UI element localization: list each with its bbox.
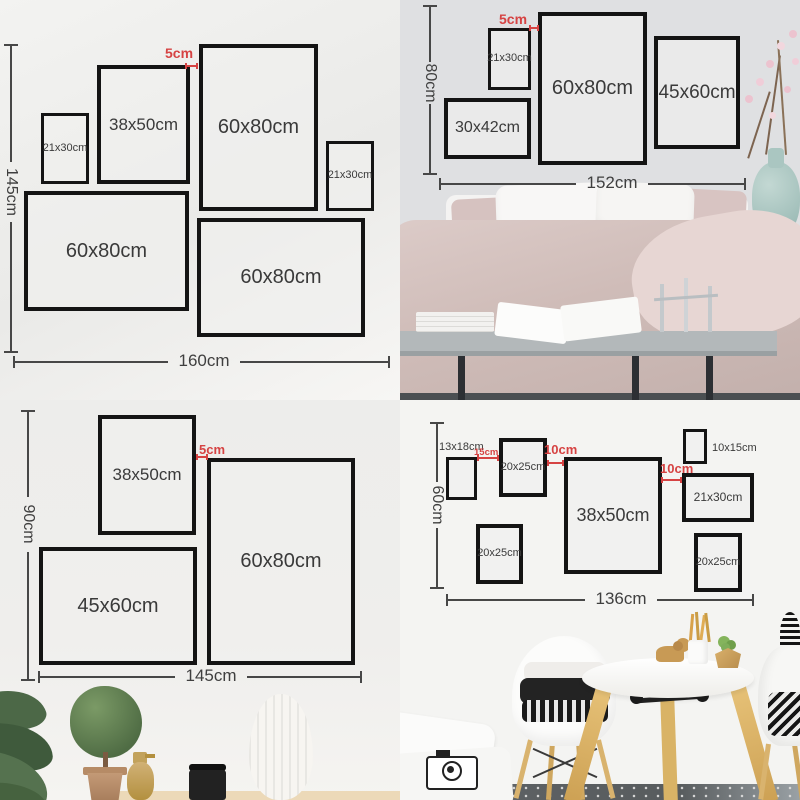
dimension-line-vertical — [436, 423, 438, 482]
dimension-tick — [423, 173, 437, 175]
branch-stem — [777, 40, 787, 155]
panel-top-left: 145cm 160cm 21x30cm 38x50cm 60x80cm 21x3… — [0, 0, 400, 400]
dimension-line-vertical — [429, 104, 431, 174]
gap-arrow — [529, 27, 539, 29]
height-dimension-label: 80cm — [421, 55, 439, 111]
blossom — [792, 58, 799, 65]
frame-45x60: 45x60cm — [654, 36, 740, 149]
dimension-line-vertical — [10, 45, 12, 162]
blossom — [777, 42, 785, 50]
frame-21x30-left: 21x30cm — [41, 113, 89, 184]
dimension-line-horizontal — [440, 183, 576, 185]
dimension-tick — [4, 44, 18, 46]
dimension-tick — [744, 178, 746, 190]
width-dimension-label: 152cm — [576, 173, 648, 193]
blossom — [756, 78, 764, 86]
dimension-line-horizontal — [657, 599, 753, 601]
gap-label-10cm-left: 10cm — [544, 442, 577, 457]
candlestick — [708, 286, 712, 332]
frame-21x30: 21x30cm — [488, 28, 531, 90]
dimension-tick — [446, 594, 448, 606]
frame-13x18 — [446, 457, 477, 500]
candlestick — [684, 278, 688, 332]
pleated-lamp — [249, 694, 313, 800]
bench-leg — [458, 350, 465, 400]
dimension-tick — [38, 671, 40, 683]
frame-38x50: 38x50cm — [564, 457, 662, 574]
frame-45x60: 45x60cm — [39, 547, 197, 665]
frame-20x25-bottom-right: 20x25cm — [694, 533, 742, 592]
height-dimension-label: 60cm — [428, 477, 446, 533]
magazine-stack — [416, 312, 494, 332]
frame-38x50: 38x50cm — [98, 415, 196, 535]
table-leg — [660, 692, 678, 800]
dimension-line-vertical — [10, 222, 12, 352]
pencil-cup — [688, 640, 708, 664]
frame-60x80: 60x80cm — [538, 12, 647, 165]
panel-bottom-left: 90cm 145cm 38x50cm 60x80cm 45x60cm 5cm — [0, 400, 400, 800]
dimension-line-horizontal — [247, 676, 361, 678]
panel-top-right: 80cm 152cm 21x30cm 60x80cm 45x60cm 30x42… — [400, 0, 800, 400]
geometric-planter — [715, 648, 741, 668]
brass-sprayer-body — [127, 762, 154, 800]
dimension-line-vertical — [27, 552, 29, 680]
bench-leg — [706, 350, 713, 400]
gap-arrow — [196, 456, 208, 458]
brass-sprayer-nozzle — [145, 754, 155, 758]
dimension-line-vertical — [27, 411, 29, 497]
gap-arrow — [477, 457, 499, 459]
wooden-elephant-ear — [673, 641, 683, 651]
blossom — [766, 60, 774, 68]
dimension-tick — [423, 5, 437, 7]
frame-60x80-portrait: 60x80cm — [199, 44, 318, 211]
chair-cushion-patterned — [768, 692, 800, 736]
gap-arrow — [185, 65, 198, 67]
dimension-line-horizontal — [447, 599, 585, 601]
panel-bottom-right: 60cm 136cm 13x18cm 20x25cm 38x50cm 10x15… — [400, 400, 800, 800]
blossom — [745, 95, 753, 103]
dimension-line-vertical — [436, 528, 438, 588]
topiary-foliage — [70, 686, 142, 758]
dimension-tick — [752, 594, 754, 606]
frame-30x42: 30x42cm — [444, 98, 531, 159]
gap-arrow — [661, 479, 682, 481]
gap-label-10cm-right: 10cm — [660, 461, 693, 476]
dimension-tick — [430, 422, 444, 424]
width-dimension-label: 145cm — [175, 666, 247, 686]
black-jar — [189, 770, 226, 800]
width-dimension-label: 136cm — [585, 589, 657, 609]
frame-60x80: 60x80cm — [207, 458, 355, 665]
frame-21x30-right: 21x30cm — [326, 141, 374, 211]
dimension-tick — [21, 410, 35, 412]
frame-10x15 — [683, 429, 707, 464]
frame-20x25-top: 20x25cm — [499, 438, 547, 497]
gap-label-5cm: 5cm — [199, 442, 225, 457]
vase-neck — [768, 148, 784, 168]
dimension-line-horizontal — [240, 361, 390, 363]
gap-label-5cm: 5cm — [165, 45, 193, 61]
dimension-tick — [360, 671, 362, 683]
dimension-tick — [439, 178, 441, 190]
dimension-line-horizontal — [14, 361, 168, 363]
dimension-line-horizontal — [39, 676, 175, 678]
bench-leg — [632, 350, 639, 400]
frame-10x15-label: 10x15cm — [712, 442, 757, 454]
dimension-line-horizontal — [648, 183, 745, 185]
gap-label-5cm: 5cm — [499, 11, 527, 27]
terracotta-pot — [85, 773, 125, 800]
frame-60x80-landscape-right: 60x80cm — [197, 218, 365, 337]
candlestick — [660, 284, 664, 332]
blossom — [784, 86, 791, 93]
product-image-grid: 145cm 160cm 21x30cm 38x50cm 60x80cm 21x3… — [0, 0, 800, 800]
gap-arrow — [547, 462, 564, 464]
dimension-tick — [13, 356, 15, 368]
dimension-tick — [4, 351, 18, 353]
pencil — [689, 614, 694, 642]
dimension-tick — [21, 679, 35, 681]
frame-60x80-landscape-left: 60x80cm — [24, 191, 189, 311]
dimension-tick — [430, 587, 444, 589]
pencil — [704, 613, 711, 642]
frame-20x25-bottom-left: 20x25cm — [476, 524, 523, 584]
height-dimension-label: 145cm — [2, 164, 20, 220]
blossom — [789, 30, 797, 38]
frame-21x30: 21x30cm — [682, 473, 754, 522]
frame-38x50: 38x50cm — [97, 65, 190, 184]
dimension-tick — [388, 356, 390, 368]
height-dimension-label: 90cm — [19, 496, 37, 552]
blossom — [769, 112, 776, 119]
camera-print-lens-dot — [447, 766, 454, 773]
width-dimension-label: 160cm — [168, 351, 240, 371]
dimension-line-vertical — [429, 6, 431, 62]
